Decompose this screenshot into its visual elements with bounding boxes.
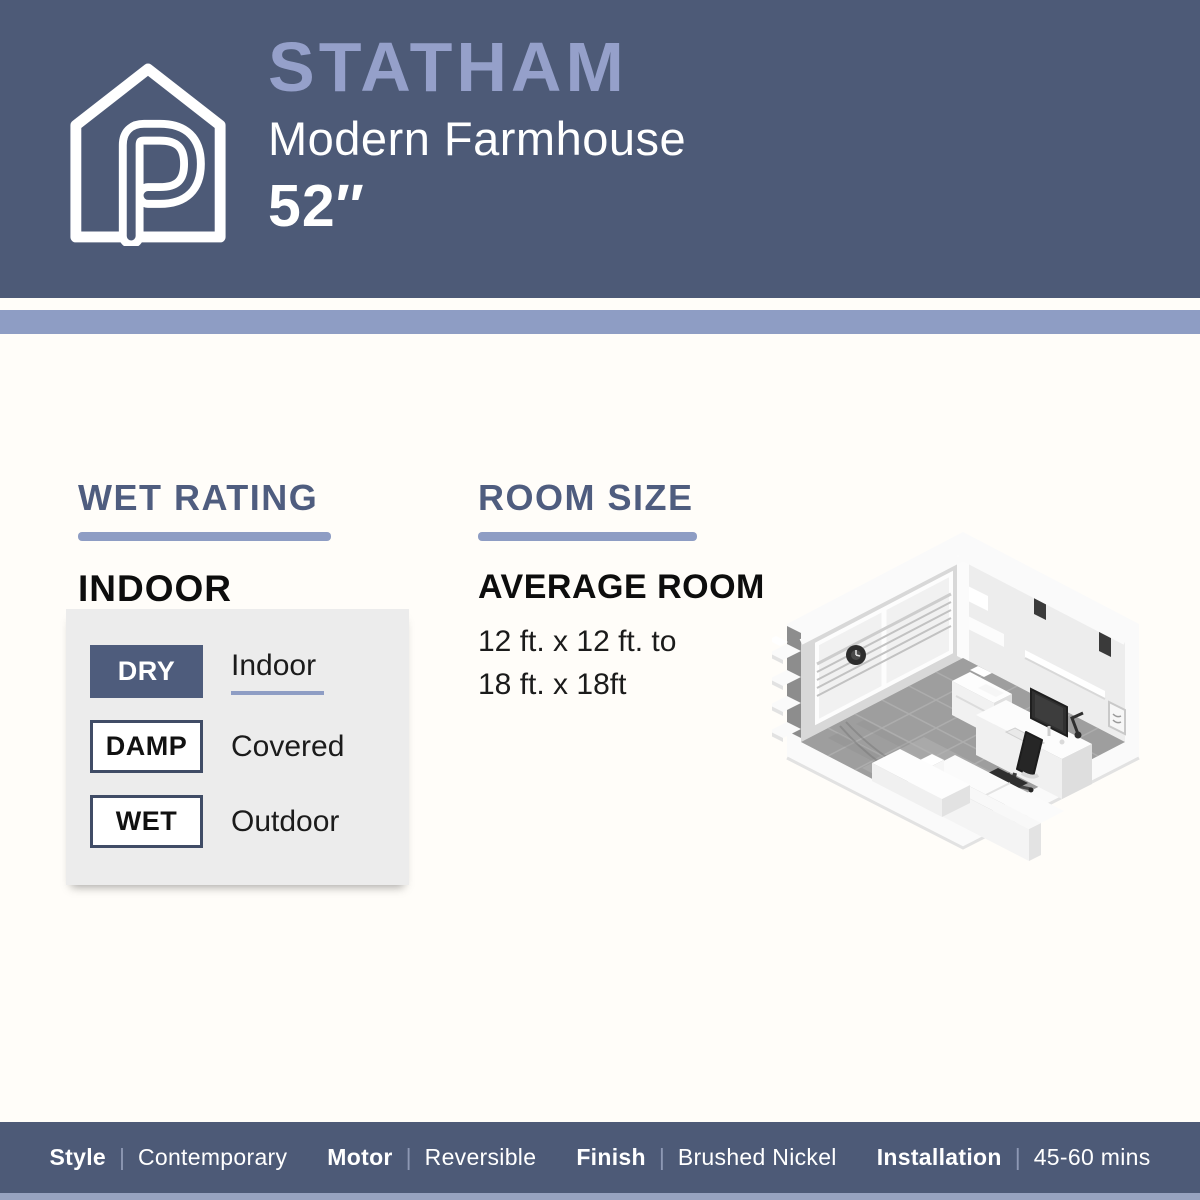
- room-size-range: 12 ft. x 12 ft. to 18 ft. x 18ft: [478, 621, 765, 706]
- damp-badge: DAMP: [90, 720, 203, 773]
- spec-motor: Motor | Reversible: [327, 1144, 536, 1171]
- spec-style: Style | Contemporary: [50, 1144, 288, 1171]
- damp-label: Covered: [231, 730, 344, 764]
- spec-label: Style: [50, 1144, 106, 1171]
- legend-row-wet: WET Outdoor: [90, 795, 409, 848]
- spec-divider: |: [1015, 1144, 1021, 1171]
- product-name: STATHAM: [268, 30, 686, 104]
- spec-divider: |: [119, 1144, 125, 1171]
- room-size-range-line2: 18 ft. x 18ft: [478, 664, 765, 707]
- product-style-name: Modern Farmhouse: [268, 114, 686, 163]
- house-p-logo: [64, 58, 232, 246]
- wet-label: Outdoor: [231, 805, 339, 839]
- isometric-room-illustration: [772, 526, 1156, 870]
- accent-stripe-top: [0, 310, 1200, 334]
- spec-value: Brushed Nickel: [678, 1144, 837, 1171]
- legend-row-dry: DRY Indoor: [90, 645, 409, 698]
- wet-rating-section: WET RATING INDOOR: [78, 477, 331, 610]
- header-text: STATHAM Modern Farmhouse 52″: [268, 30, 686, 240]
- spec-value: Contemporary: [138, 1144, 287, 1171]
- header-banner: STATHAM Modern Farmhouse 52″: [0, 0, 1200, 298]
- room-size-heading: ROOM SIZE: [478, 477, 765, 519]
- wet-rating-heading: WET RATING: [78, 477, 331, 519]
- wet-rating-legend: DRY Indoor DAMP Covered WET Outdoor: [66, 609, 409, 885]
- spec-installation: Installation | 45-60 mins: [877, 1144, 1151, 1171]
- spec-label: Finish: [576, 1144, 646, 1171]
- average-room-label: AVERAGE ROOM: [478, 568, 765, 607]
- accent-stripe-bottom: [0, 1193, 1200, 1200]
- spec-label: Motor: [327, 1144, 392, 1171]
- dry-label: Indoor: [231, 649, 324, 695]
- spec-divider: |: [406, 1144, 412, 1171]
- dry-badge: DRY: [90, 645, 203, 698]
- spec-finish: Finish | Brushed Nickel: [576, 1144, 836, 1171]
- wet-rating-value: INDOOR: [78, 568, 331, 610]
- spec-value: Reversible: [425, 1144, 537, 1171]
- room-size-range-line1: 12 ft. x 12 ft. to: [478, 621, 765, 664]
- spec-divider: |: [659, 1144, 665, 1171]
- spec-label: Installation: [877, 1144, 1002, 1171]
- legend-row-damp: DAMP Covered: [90, 720, 409, 773]
- heading-underline: [78, 532, 331, 541]
- product-infographic: STATHAM Modern Farmhouse 52″ WET RATING …: [0, 0, 1200, 1200]
- fan-size-value: 52″: [268, 172, 686, 240]
- spec-value: 45-60 mins: [1034, 1144, 1151, 1171]
- heading-underline: [478, 532, 697, 541]
- spec-bar: Style | Contemporary Motor | Reversible …: [0, 1122, 1200, 1193]
- room-size-section: ROOM SIZE AVERAGE ROOM 12 ft. x 12 ft. t…: [478, 477, 765, 706]
- wet-badge: WET: [90, 795, 203, 848]
